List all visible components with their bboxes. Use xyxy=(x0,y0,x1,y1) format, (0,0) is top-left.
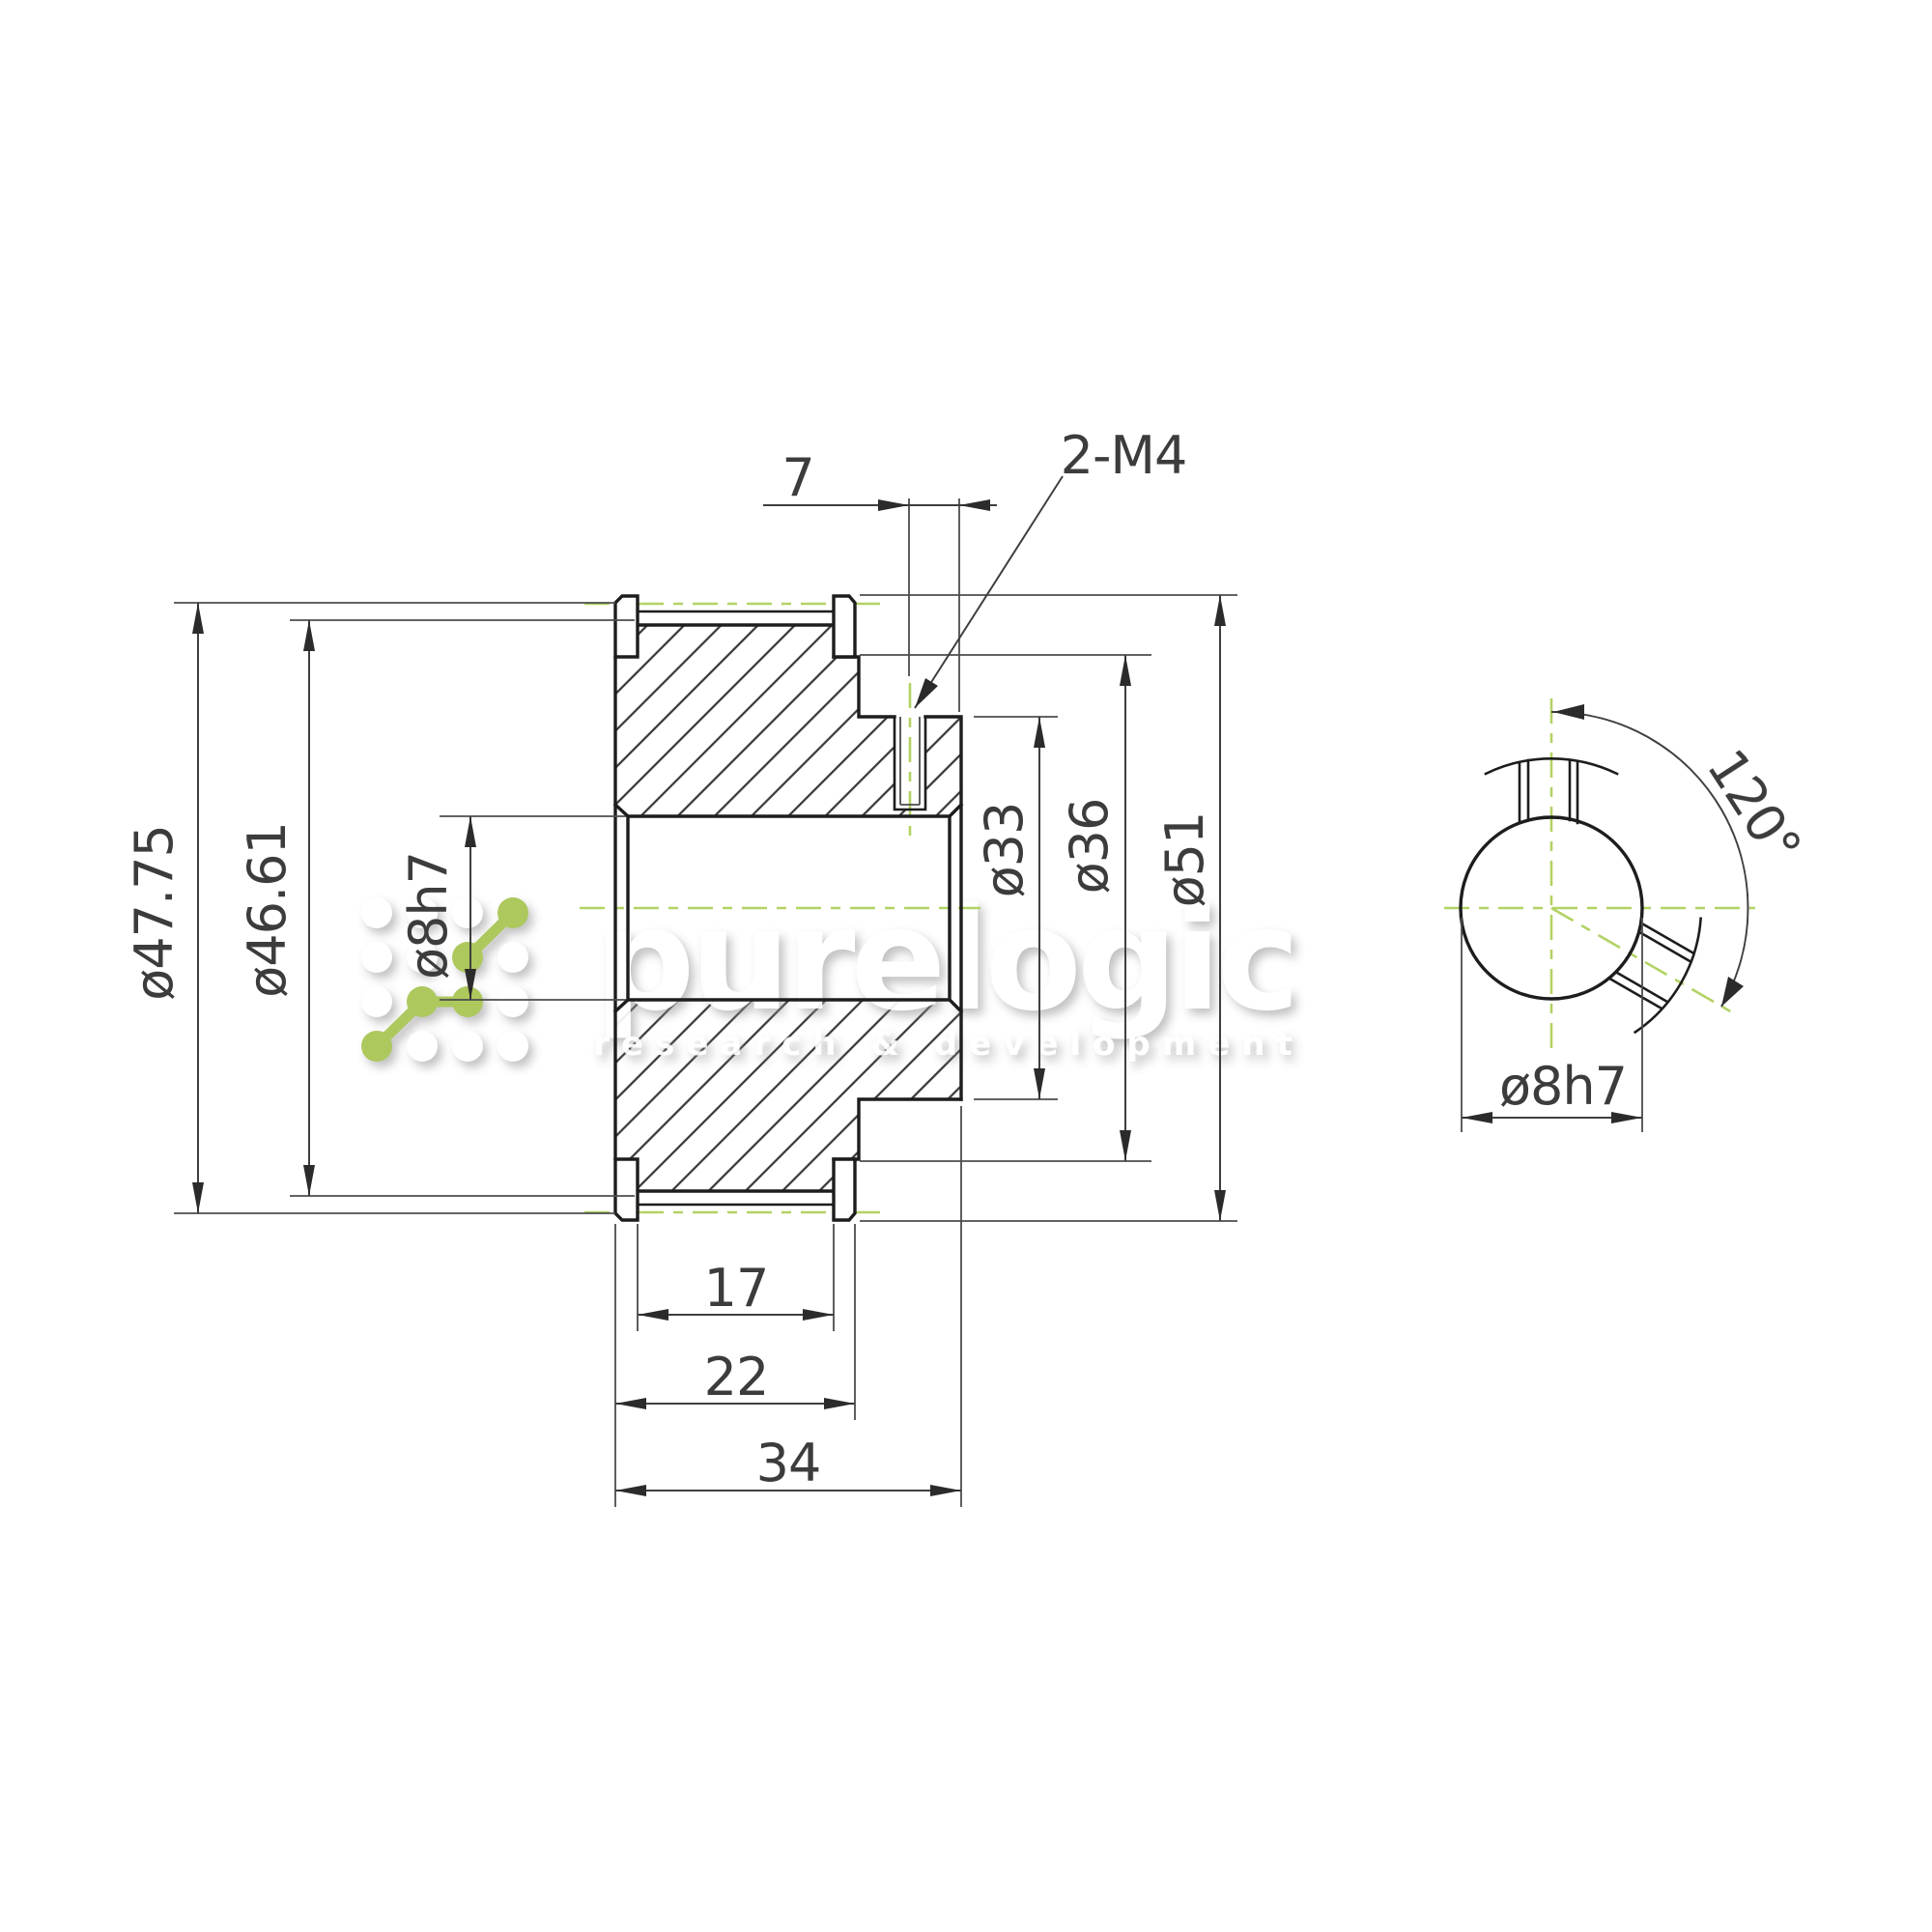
logo-dot xyxy=(497,942,528,973)
logo-dot xyxy=(497,1031,528,1062)
dim-label-bore-section: ø8h7 xyxy=(398,852,459,980)
logo-dot xyxy=(361,897,392,928)
watermark-tagline-text: research & development xyxy=(593,1025,1303,1064)
dim-label-bore-end: ø8h7 xyxy=(1499,1056,1627,1117)
logo-dot-green xyxy=(407,986,438,1017)
dim-label-setscrew-offset: 7 xyxy=(781,447,813,508)
setscrew-120deg xyxy=(1609,919,1701,1033)
logo-dot-green xyxy=(497,897,528,928)
leader-2m4 xyxy=(915,476,1063,708)
logo-dot xyxy=(452,1031,483,1062)
logo-dot xyxy=(407,1031,438,1062)
end-view xyxy=(1461,758,1701,1032)
dim-label-setscrew-angle: 120° xyxy=(1695,739,1813,874)
dim-label-pitch-od: ø46.61 xyxy=(237,822,298,998)
label-thread-spec: 2-M4 xyxy=(1061,425,1187,486)
dim-label-over-flange-width: 22 xyxy=(704,1347,769,1407)
logo-dot-green xyxy=(361,1031,392,1062)
technical-drawing-canvas: purelogic research & development xyxy=(0,0,1932,1932)
logo-dot xyxy=(361,942,392,973)
logo-dot xyxy=(497,986,528,1017)
logo-dot-green xyxy=(452,986,483,1017)
dim-label-flange-tip-od: ø51 xyxy=(1154,812,1215,908)
logo-dot xyxy=(361,986,392,1017)
dim-label-flange-od: ø47.75 xyxy=(124,825,185,1001)
flange-bottom-left xyxy=(615,1159,638,1220)
flange-bottom-right xyxy=(834,1159,855,1220)
flange-top-right xyxy=(834,596,855,657)
drawing-sheet: purelogic research & development xyxy=(0,0,1932,1932)
dim-label-total-width: 34 xyxy=(756,1433,821,1493)
dim-label-belt-width: 17 xyxy=(704,1258,769,1319)
flange-top-left xyxy=(615,596,638,657)
dim-label-shoulder-od: ø36 xyxy=(1059,799,1120,895)
dim-label-hub-od: ø33 xyxy=(974,803,1035,898)
